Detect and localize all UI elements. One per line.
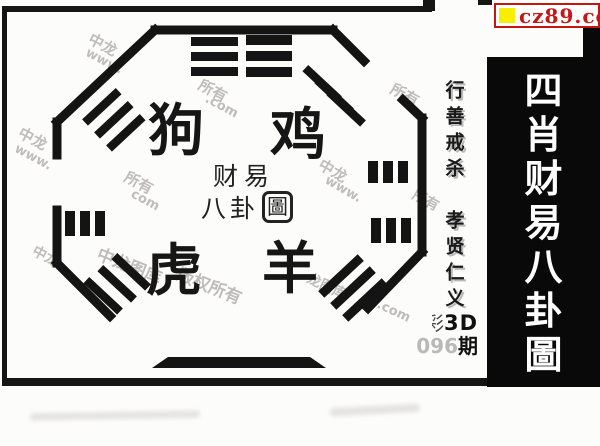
motto-line1: 行善戒杀 — [441, 80, 468, 184]
issue-label: 彩3D 096期 — [398, 312, 478, 357]
trigram-top-left-corner — [82, 88, 145, 152]
strip-title-char: 财 — [524, 157, 562, 201]
banner-square-icon — [499, 8, 515, 23]
strip-title-char: 肖 — [524, 113, 562, 157]
seal-title-line1: 财易 — [213, 157, 275, 193]
strip-title-char: 四 — [524, 69, 562, 113]
trigram-right-side-lower — [371, 218, 411, 243]
seal-boxed-char: 圖 — [262, 191, 293, 223]
seal-line2-text: 八卦 — [201, 189, 259, 225]
trigram-bottom-right-corner — [318, 254, 388, 321]
strip-title-char: 八 — [524, 245, 562, 289]
trigram-right-side-upper — [368, 161, 408, 183]
zodiac-sheep: 羊 — [262, 241, 318, 297]
site-banner[interactable]: cz89.com — [494, 3, 600, 28]
trigram-left-side — [65, 211, 105, 236]
issue-prefix-partial: 彩 — [432, 314, 444, 335]
zodiac-tiger: 虎 — [146, 243, 202, 299]
trigram-top-center-right — [246, 35, 292, 77]
strip-step — [583, 25, 600, 59]
trigram-top-center-left — [191, 37, 238, 76]
strip-title-char: 卦 — [524, 289, 562, 333]
game-name: 3D — [444, 311, 478, 335]
motto-column: 行善戒杀 孝贤仁义 — [438, 80, 470, 314]
motto-line2: 孝贤仁义 — [441, 210, 468, 314]
vertical-title-strip: 四肖财易八卦圖 — [487, 57, 600, 387]
strip-title-char: 圖 — [524, 333, 562, 377]
strip-title-char: 易 — [524, 201, 562, 245]
seal-title-line2: 八卦 圖 — [201, 189, 293, 225]
octagon-bottom-edge — [152, 357, 326, 368]
issue-number: 096 — [416, 334, 458, 358]
zodiac-dog: 狗 — [148, 103, 204, 159]
zodiac-rooster: 鸡 — [270, 107, 326, 163]
issue-suffix: 期 — [458, 334, 478, 358]
bagua-chart-page: 中龙www.所有.com中龙www.所有com中龙www.所有所有中龙图库版权所… — [0, 0, 600, 446]
banner-text: cz89.com — [519, 6, 600, 26]
